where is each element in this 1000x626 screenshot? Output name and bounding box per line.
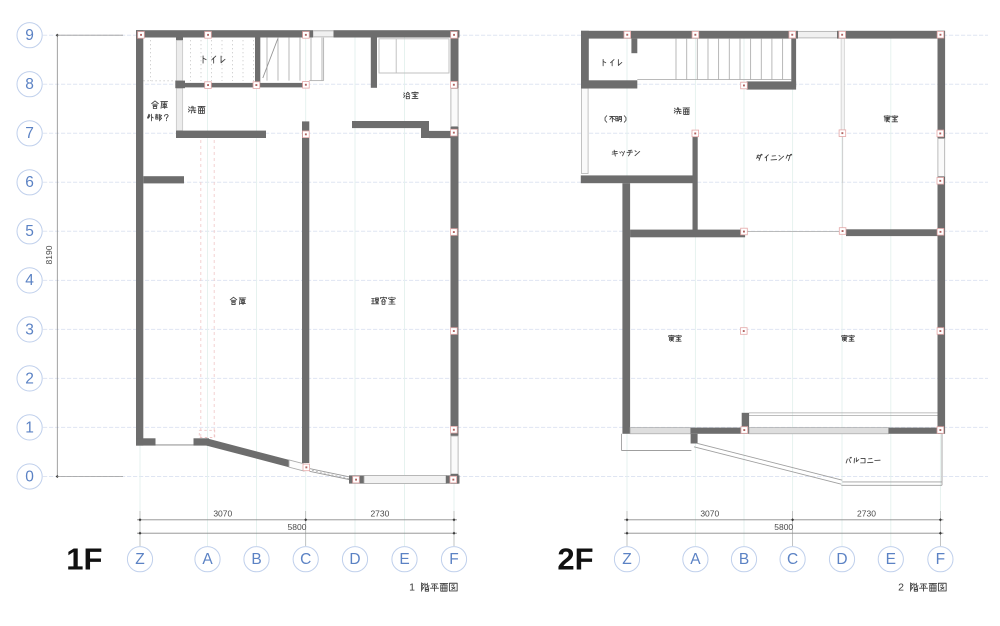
svg-text:1: 1 [409,582,415,594]
svg-text:2730: 2730 [857,509,876,519]
svg-text:A: A [690,551,701,568]
svg-text:3: 3 [25,321,34,338]
svg-text:F: F [449,551,458,568]
svg-text:E: E [886,551,896,568]
svg-text:B: B [251,551,261,568]
svg-text:A: A [202,551,213,568]
svg-text:8: 8 [25,76,34,93]
svg-text:9: 9 [25,27,34,44]
svg-text:2730: 2730 [370,509,389,519]
svg-text:E: E [399,551,409,568]
svg-text:C: C [300,551,311,568]
svg-text:B: B [739,551,749,568]
svg-text:2: 2 [898,582,904,594]
svg-text:8190: 8190 [44,245,54,264]
svg-text:1F: 1F [66,541,102,576]
svg-text:F: F [936,551,945,568]
svg-text:Z: Z [622,551,631,568]
svg-text:C: C [787,551,798,568]
svg-text:5: 5 [25,223,34,240]
svg-text:3070: 3070 [213,509,232,519]
svg-text:7: 7 [25,125,34,142]
svg-text:Z: Z [135,551,144,568]
svg-text:6: 6 [25,174,34,191]
svg-text:2: 2 [25,370,34,387]
svg-text:3070: 3070 [700,509,719,519]
svg-text:5800: 5800 [288,522,307,532]
svg-text:D: D [836,551,847,568]
svg-text:5800: 5800 [774,522,793,532]
svg-text:D: D [349,551,360,568]
svg-text:4: 4 [25,272,34,289]
svg-text:1: 1 [25,419,34,436]
svg-text:0: 0 [25,468,34,485]
svg-text:2F: 2F [557,541,593,576]
